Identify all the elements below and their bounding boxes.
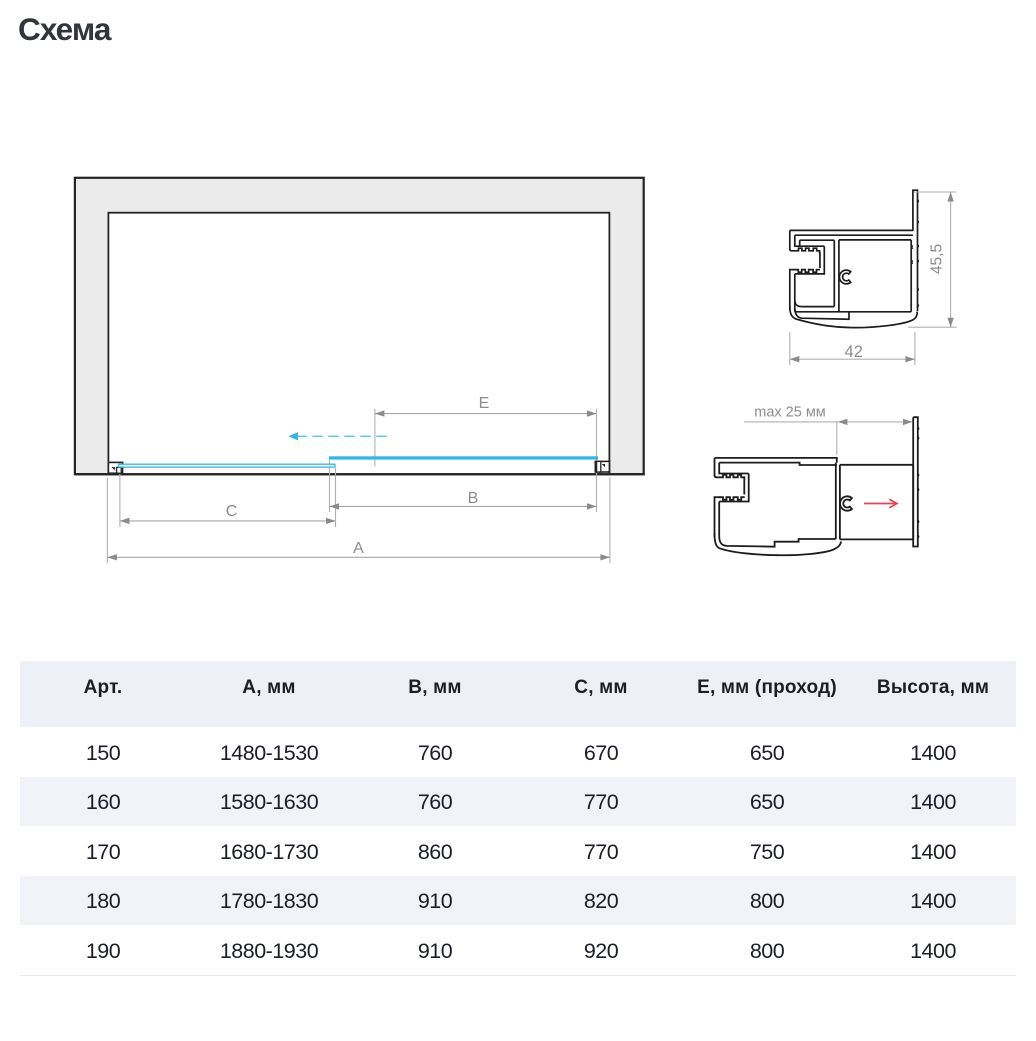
svg-text:max 25 мм: max 25 мм [754, 405, 826, 421]
svg-text:42: 42 [845, 343, 863, 361]
svg-text:45,5: 45,5 [929, 244, 946, 274]
svg-text:C: C [226, 503, 238, 520]
svg-text:A: A [353, 540, 364, 557]
svg-text:B: B [468, 490, 479, 507]
svg-text:E: E [479, 395, 490, 412]
